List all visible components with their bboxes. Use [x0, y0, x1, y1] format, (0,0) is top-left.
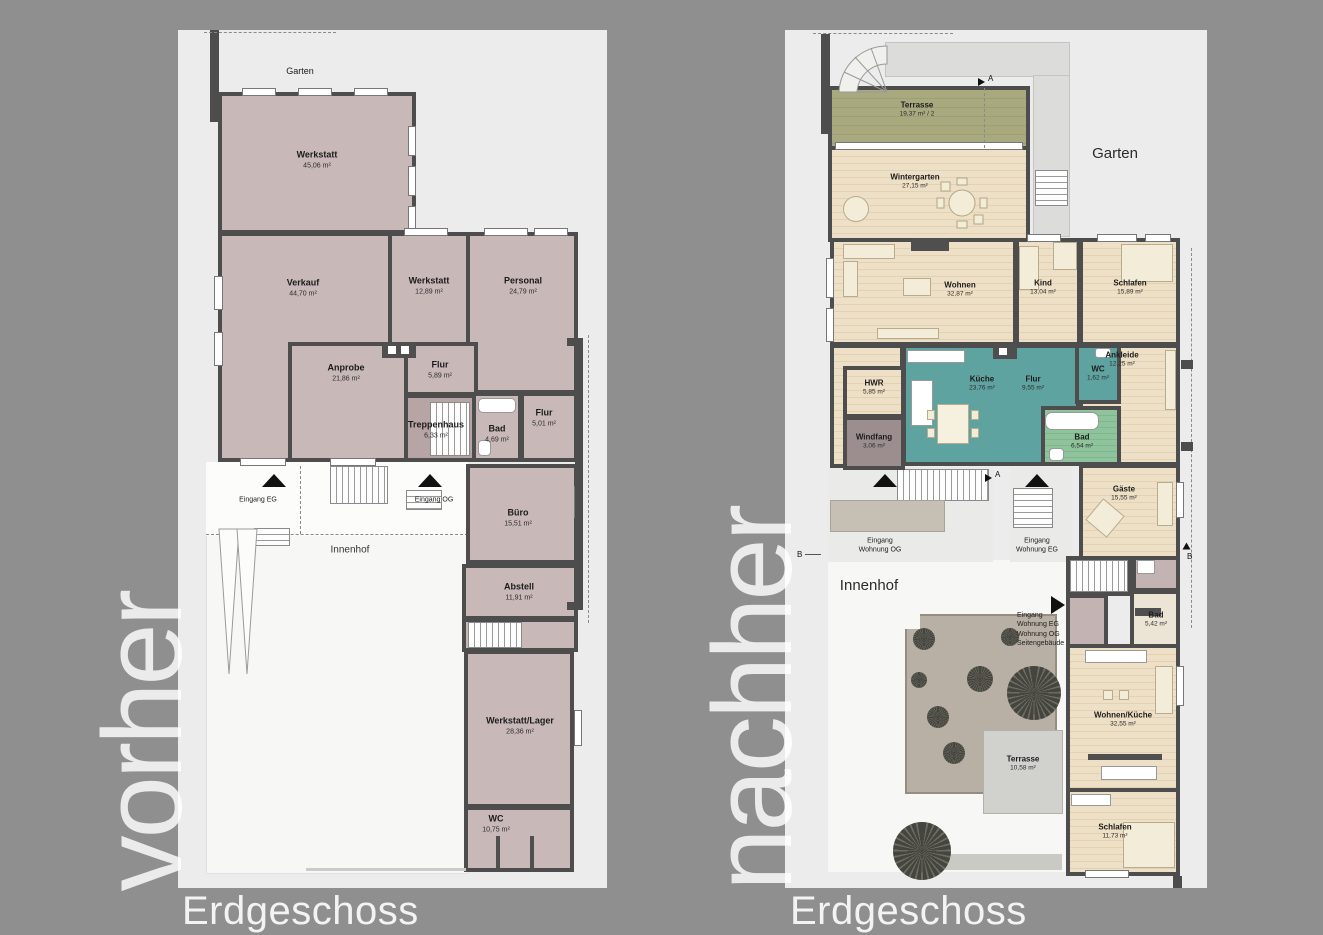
label-wc: WC1,62 m² [1087, 365, 1109, 384]
garden-text: Garten [286, 66, 314, 78]
section-a-mark: A [995, 470, 1000, 479]
wall-stub [1173, 876, 1182, 888]
label-bad: Bad4,69 m² [485, 424, 509, 445]
label-kind: Kind13,04 m² [1030, 279, 1056, 298]
tree-icon [967, 666, 993, 692]
neighbor-wall-hook [567, 602, 583, 610]
entry-stairs [330, 466, 388, 504]
toilet [1049, 448, 1064, 461]
label-treppenhaus: Treppenhaus6,33 m² [408, 420, 464, 441]
entrance-og-arrow-icon [418, 474, 442, 487]
neighbor-wall [575, 338, 583, 610]
shower-tray [1137, 560, 1155, 574]
wing-vestibule [1066, 594, 1108, 648]
chimney-flue [401, 346, 409, 354]
chair [971, 428, 979, 438]
window [1027, 234, 1061, 242]
floor-label-right: Erdgeschoss [790, 889, 1027, 934]
label-hwr: HWR5,85 m² [863, 379, 885, 398]
neighbor-wall-hook [1181, 360, 1193, 369]
section-dashed-line [984, 88, 985, 148]
entrance-eg-arrow-icon [1025, 474, 1049, 487]
window [484, 228, 528, 236]
courtyard-label: Innenhof [840, 576, 898, 596]
label-kueche: Küche23,76 m² [969, 375, 995, 394]
entrance-eg-arrow-icon [262, 474, 286, 487]
label-windfang: Windfang3,06 m² [856, 433, 892, 452]
label-schlafen1: Schlafen15,89 m² [1113, 279, 1146, 298]
gate-icon [218, 528, 258, 676]
boundary-dashed-line [813, 33, 953, 34]
chair [927, 410, 935, 420]
label-gaeste: Gäste15,55 m² [1111, 485, 1137, 504]
chair [1119, 690, 1129, 700]
entrance-multi-label: Eingang Wohnung EG Wohnung OG Seitengebä… [1017, 611, 1064, 649]
label-bad2: Bad5,42 m² [1145, 611, 1167, 630]
window [408, 206, 416, 230]
section-flag-icon [1183, 543, 1191, 550]
entry-stairs-eg [1013, 488, 1053, 528]
plan-after-panel: Eingang Wohnung OG Eingang Wohnung EG In… [785, 30, 1207, 888]
entrance-og-label: Eingang OG [415, 495, 454, 504]
entrance-eg-label: Eingang Wohnung EG [1016, 537, 1058, 556]
room-wc-before [464, 806, 574, 872]
coffee-table [903, 278, 931, 296]
boundary-dashed-line [204, 32, 336, 33]
label-verkauf: Verkauf44,70 m² [287, 278, 320, 299]
entrance-eg-label: Eingang EG [239, 495, 277, 504]
window [1176, 482, 1184, 518]
chair [1103, 690, 1113, 700]
window [214, 332, 223, 366]
label-bad1: Bad6,54 m² [1071, 433, 1093, 452]
window [408, 166, 416, 196]
window [574, 710, 582, 746]
plan-before-panel: Garten [178, 30, 607, 888]
window [1145, 234, 1171, 242]
entry-dashed-divider [300, 466, 301, 534]
window [826, 258, 834, 298]
stove-detail [999, 348, 1007, 355]
lounge-chair [843, 196, 869, 222]
window [408, 126, 416, 156]
label-werkstatt-lager: Werkstatt/Lager28,36 m² [486, 716, 554, 737]
label-ankleide: Ankleide12,25 m² [1105, 351, 1138, 370]
wc-partition [496, 836, 500, 870]
label-terrasse1: Terrasse19,37 m² / 2 [900, 101, 935, 120]
sofa [843, 261, 858, 297]
window [1097, 234, 1137, 242]
garden-path [885, 42, 1070, 77]
label-buero: Büro15,51 m² [504, 508, 532, 529]
wing-sofa [1155, 666, 1173, 714]
entrance-og-arrow-icon [873, 474, 897, 487]
guest-sofa [1157, 482, 1173, 526]
window [214, 276, 223, 310]
section-flag-icon [985, 474, 992, 482]
large-tree-icon [1007, 666, 1061, 720]
fence-line [306, 868, 466, 871]
double-bed [1121, 244, 1173, 282]
entry-stairs-og [897, 469, 989, 501]
label-flur2: Flur5,01 m² [532, 408, 556, 429]
room-wintergarten [828, 146, 1030, 242]
section-b-mark: B [1187, 552, 1192, 561]
neighbor-wall-hook [567, 338, 583, 346]
wc-partition [530, 836, 534, 870]
window [1176, 666, 1184, 706]
window [1085, 870, 1129, 878]
tree-icon [913, 628, 935, 650]
eg-steps [254, 528, 290, 546]
tree-icon [943, 742, 965, 764]
courtyard-label: Innenhof [331, 543, 370, 557]
bathtub [478, 398, 516, 413]
label-personal: Personal24,79 m² [504, 276, 542, 297]
shop-window [240, 458, 286, 466]
spiral-stair-icon [835, 42, 891, 94]
sideboard [877, 328, 939, 339]
wing-counter [1085, 650, 1147, 663]
wing-dresser [1071, 794, 1111, 806]
label-flur1: Flur5,89 m² [428, 360, 452, 381]
patio-notch [903, 612, 920, 629]
section-flag-icon [978, 78, 985, 86]
wardrobe [1053, 242, 1077, 270]
closet [1165, 350, 1176, 410]
label-wc: WC10,75 m² [482, 814, 510, 835]
window [534, 228, 568, 236]
floor-plan-comparison: Garten [0, 0, 1323, 935]
garden-path [1033, 75, 1070, 237]
label-werkstatt2: Werkstatt12,89 m² [409, 276, 450, 297]
garden-label: Garten [286, 66, 314, 78]
neighbor-wall-hook [1181, 442, 1193, 451]
kitchen-counter-bar [1088, 754, 1162, 760]
watermark-nachher: nachher [688, 507, 817, 891]
window [404, 228, 448, 236]
entrance-og-label: Eingang Wohnung OG [859, 537, 902, 556]
label-flur: Flur9,55 m² [1022, 375, 1044, 394]
kitchen-counter [907, 350, 965, 363]
window [354, 88, 388, 96]
watermark-vorher: vorher [78, 592, 207, 891]
glazing-band [835, 142, 1023, 150]
tree-icon [911, 672, 927, 688]
chimney-flue [388, 346, 396, 354]
chair [927, 428, 935, 438]
room-personal [466, 232, 578, 394]
sofa [843, 244, 895, 259]
dining-table [937, 404, 969, 444]
label-anprobe: Anprobe21,86 m² [328, 363, 365, 384]
large-tree-icon [893, 822, 951, 880]
parcel-dashed-line [588, 335, 589, 623]
wing-stairs [1070, 560, 1128, 592]
garden-label: Garten [1092, 144, 1138, 164]
label-wintergarten: Wintergarten27,15 m² [890, 173, 939, 192]
label-schlafen2: Schlafen11,73 m² [1098, 823, 1131, 842]
wing-sideboard [1101, 766, 1157, 780]
label-wohnen-kueche: Wohnen/Küche32,55 m² [1094, 711, 1152, 730]
round-table-icon [935, 176, 989, 230]
abstell-stairs [468, 622, 522, 648]
floor-label-left: Erdgeschoss [182, 889, 419, 934]
label-abstell: Abstell11,91 m² [504, 582, 534, 603]
label-terrasse2: Terrasse10,58 m² [1007, 755, 1040, 774]
chair [971, 410, 979, 420]
shop-window [330, 458, 376, 466]
window [298, 88, 332, 96]
bathtub [1045, 412, 1099, 430]
section-a-mark: A [988, 74, 993, 83]
window [242, 88, 276, 96]
garden-stairs [1035, 170, 1068, 206]
label-werkstatt1: Werkstatt45,06 m² [297, 150, 338, 171]
room-anprobe [288, 342, 408, 462]
label-wohnen: Wohnen32,87 m² [944, 281, 975, 300]
tv-wall [911, 238, 949, 251]
window [826, 308, 834, 342]
tree-icon [927, 706, 949, 728]
parcel-dashed-line [1191, 248, 1192, 628]
entry-platform [830, 500, 945, 532]
